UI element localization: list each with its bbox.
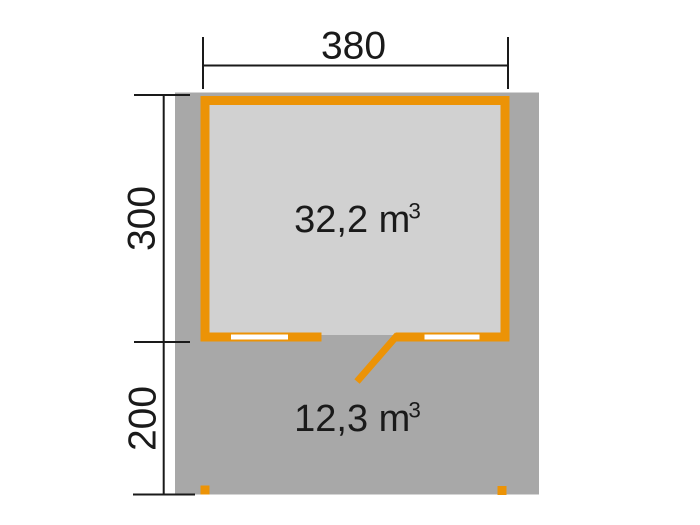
svg-text:300: 300: [121, 186, 164, 251]
svg-text:12,3 m3: 12,3 m3: [294, 398, 421, 440]
svg-text:200: 200: [122, 386, 165, 451]
svg-text:380: 380: [321, 25, 386, 68]
svg-text:32,2 m3: 32,2 m3: [294, 199, 421, 241]
